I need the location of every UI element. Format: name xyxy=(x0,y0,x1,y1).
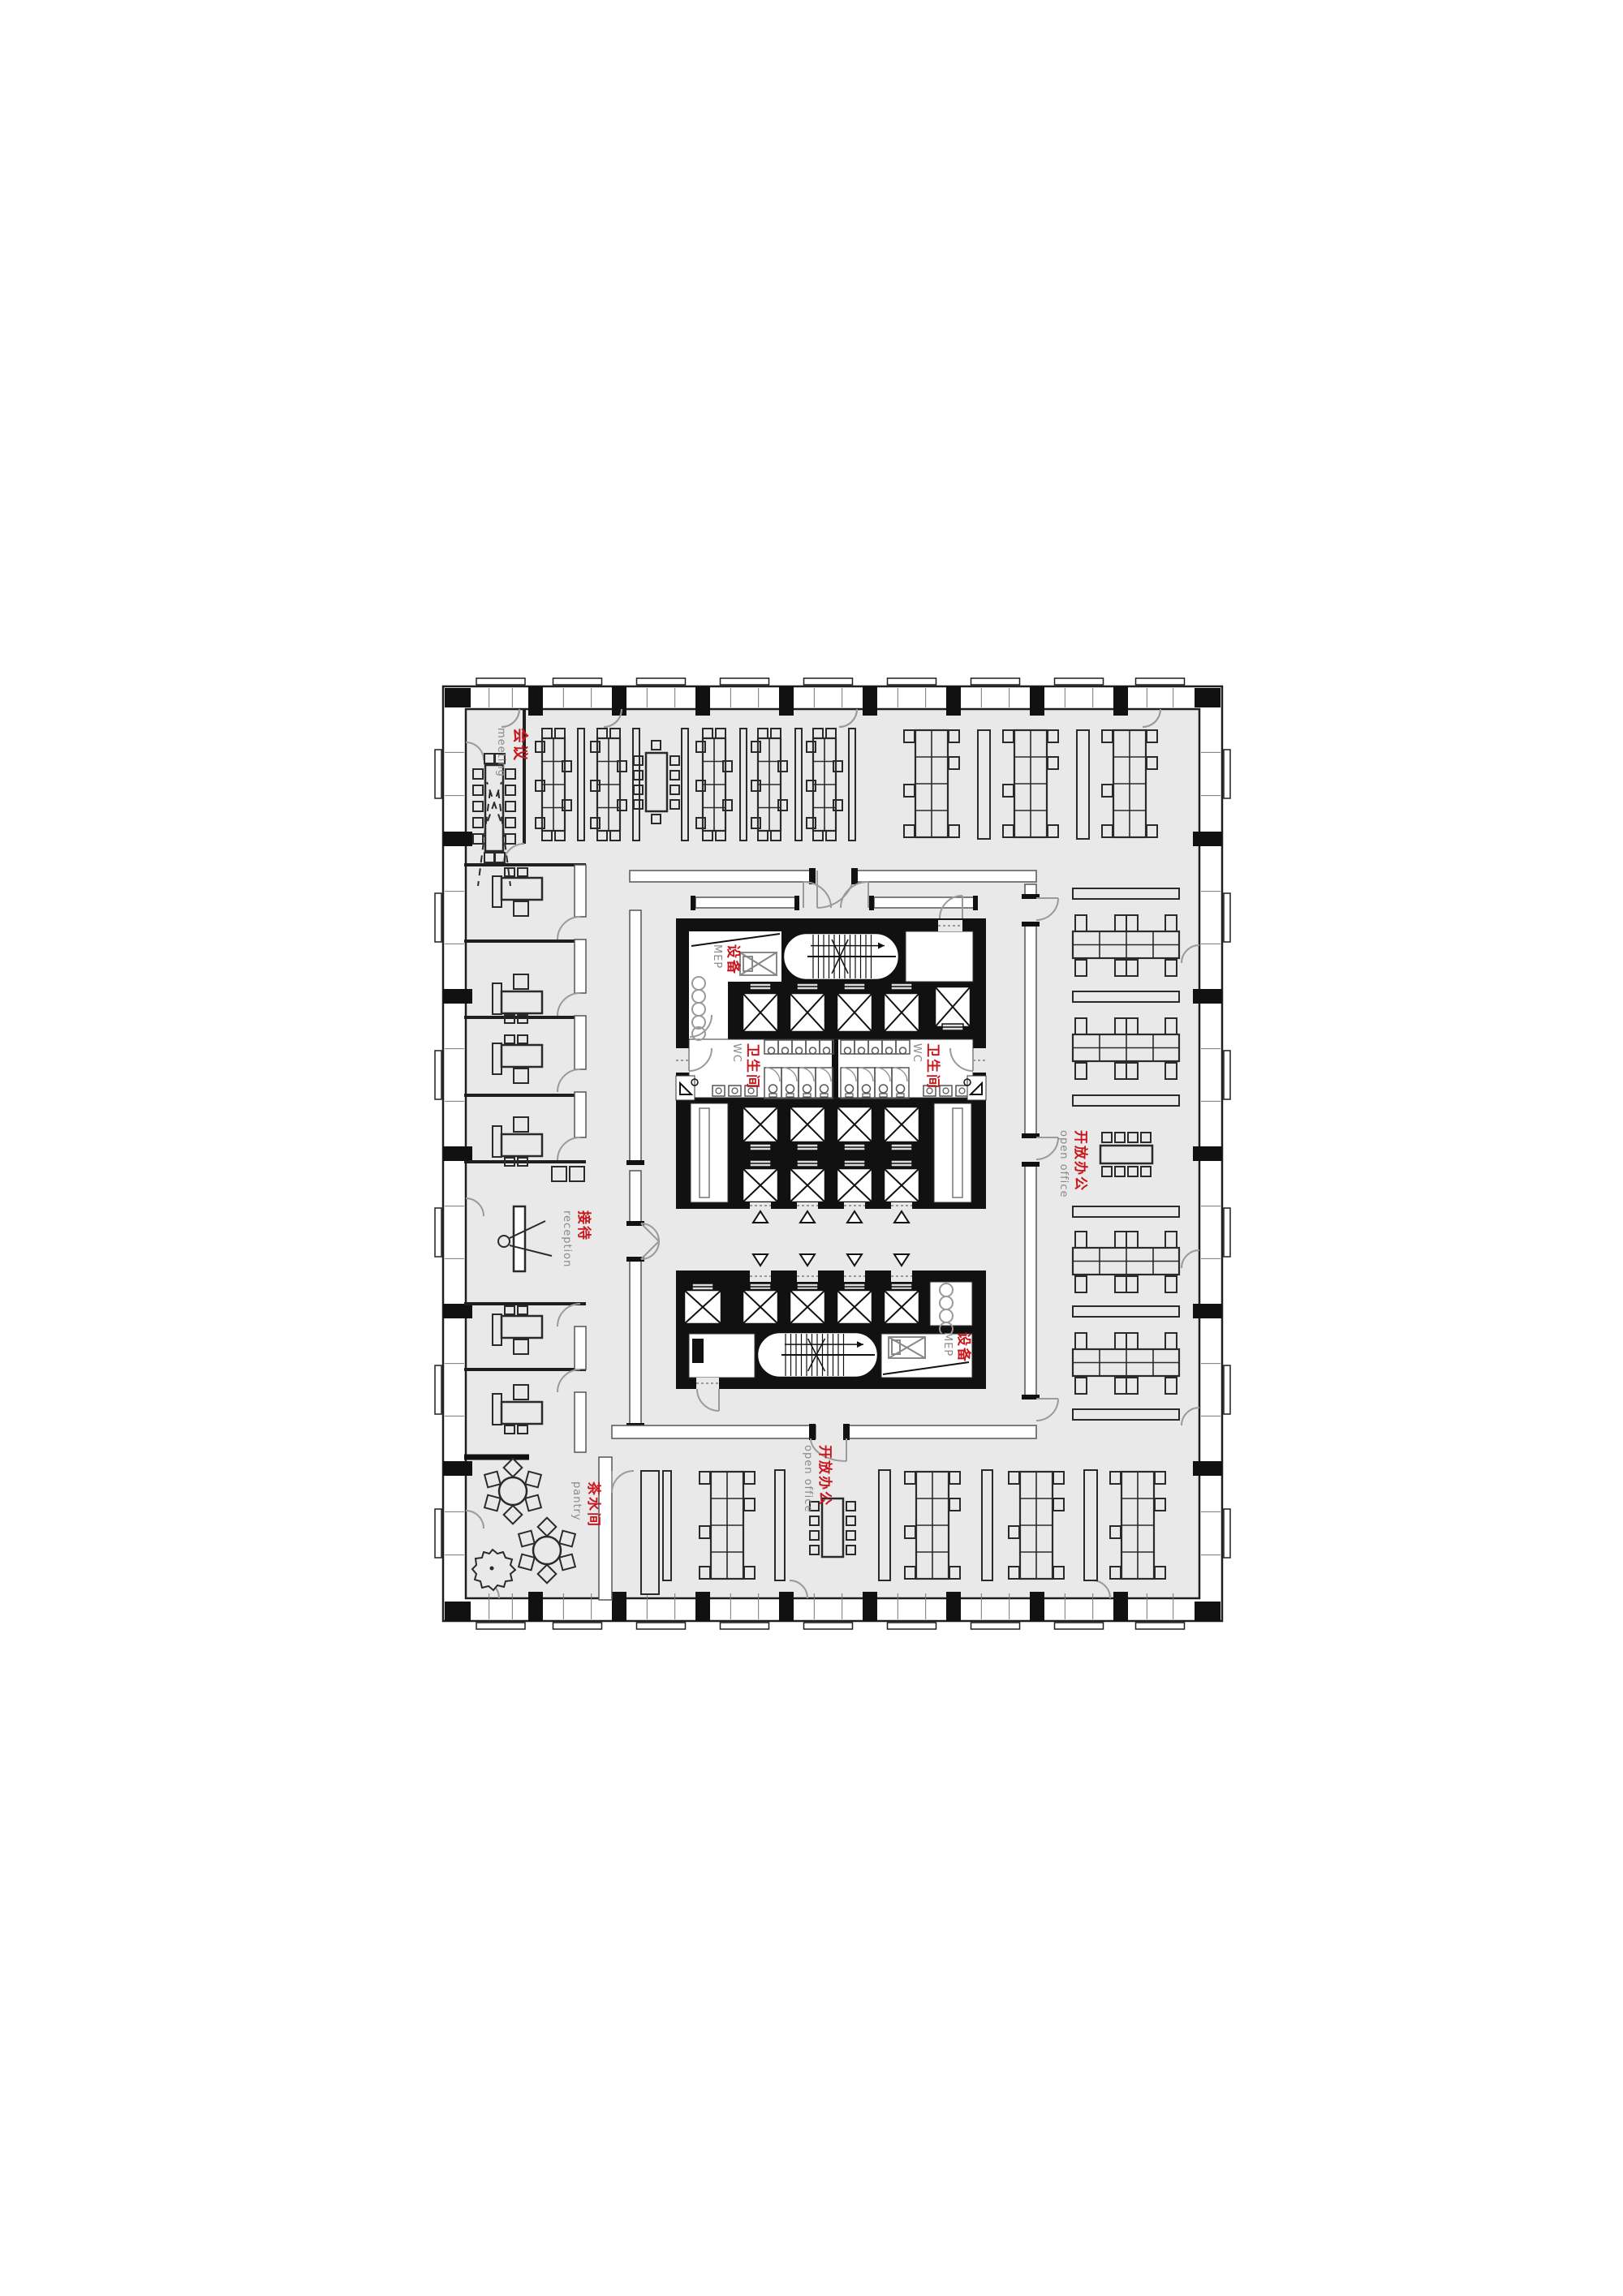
label-wc-left-en: WC xyxy=(730,1043,743,1063)
label-open-office-bottom: 开放办公 open office xyxy=(802,1445,833,1512)
label-wc-left-zh: 卫生间 xyxy=(744,1043,761,1090)
label-meeting-en: meeting xyxy=(495,728,507,777)
label-wc-right-en: WC xyxy=(911,1043,923,1063)
label-meeting-zh: 会议 xyxy=(511,728,530,762)
label-reception-en: reception xyxy=(561,1210,573,1267)
floor-plan-drawing: 会议 meeting 接待 reception 茶水间 pantry 开放办公 … xyxy=(0,0,1623,2296)
label-pantry: 茶水间 pantry xyxy=(570,1481,602,1528)
label-open-office-bottom-zh: 开放办公 xyxy=(816,1445,833,1507)
floor-plan-sheet: 会议 meeting 接待 reception 茶水间 pantry 开放办公 … xyxy=(0,0,1623,2296)
label-pantry-en: pantry xyxy=(570,1481,583,1521)
label-mep-upper-en: MEP xyxy=(711,944,723,969)
label-reception-zh: 接待 xyxy=(575,1210,592,1241)
label-open-office-right-zh: 开放办公 xyxy=(1072,1130,1089,1192)
label-open-office-bottom-en: open office xyxy=(802,1445,814,1512)
label-mep-lower-en: MEP xyxy=(941,1332,954,1357)
label-mep-upper-zh: 设备 xyxy=(725,944,742,975)
label-pantry-zh: 茶水间 xyxy=(585,1481,602,1528)
service-core xyxy=(676,896,986,1411)
label-mep-lower-zh: 设备 xyxy=(955,1332,972,1363)
label-open-office-right: 开放办公 open office xyxy=(1057,1130,1089,1197)
label-wc-right-zh: 卫生间 xyxy=(924,1043,941,1090)
label-open-office-right-en: open office xyxy=(1057,1130,1070,1197)
